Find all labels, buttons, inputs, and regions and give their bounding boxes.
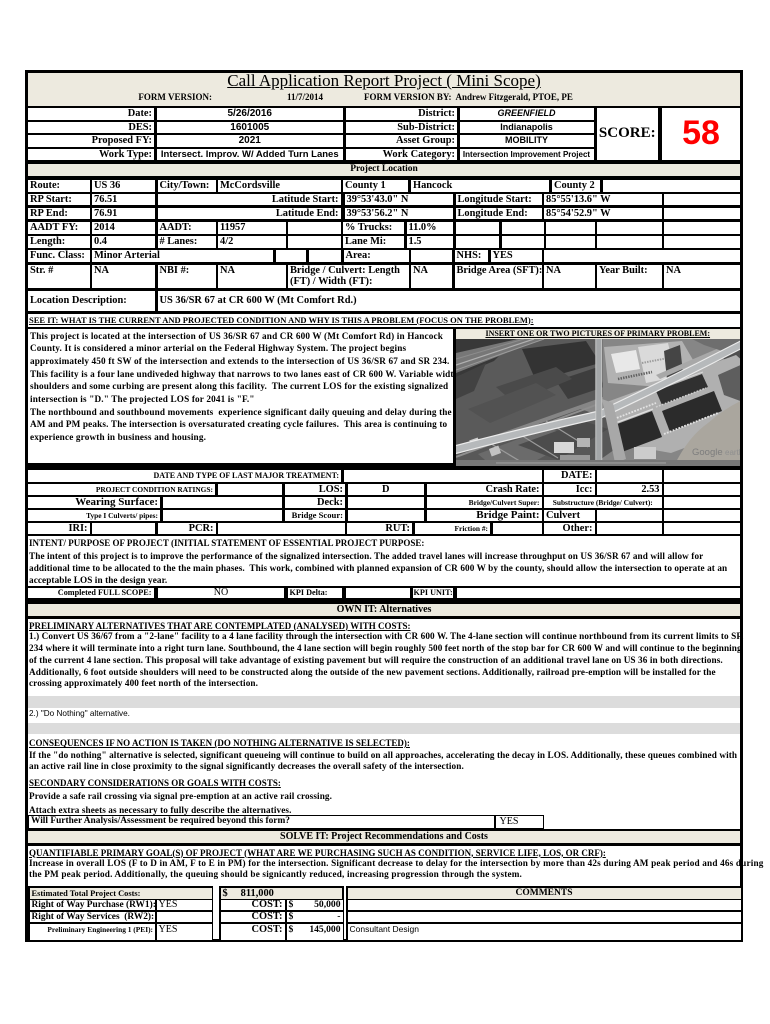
svg-text:Google: Google [692,447,723,458]
svg-text:earth: earth [725,448,741,457]
